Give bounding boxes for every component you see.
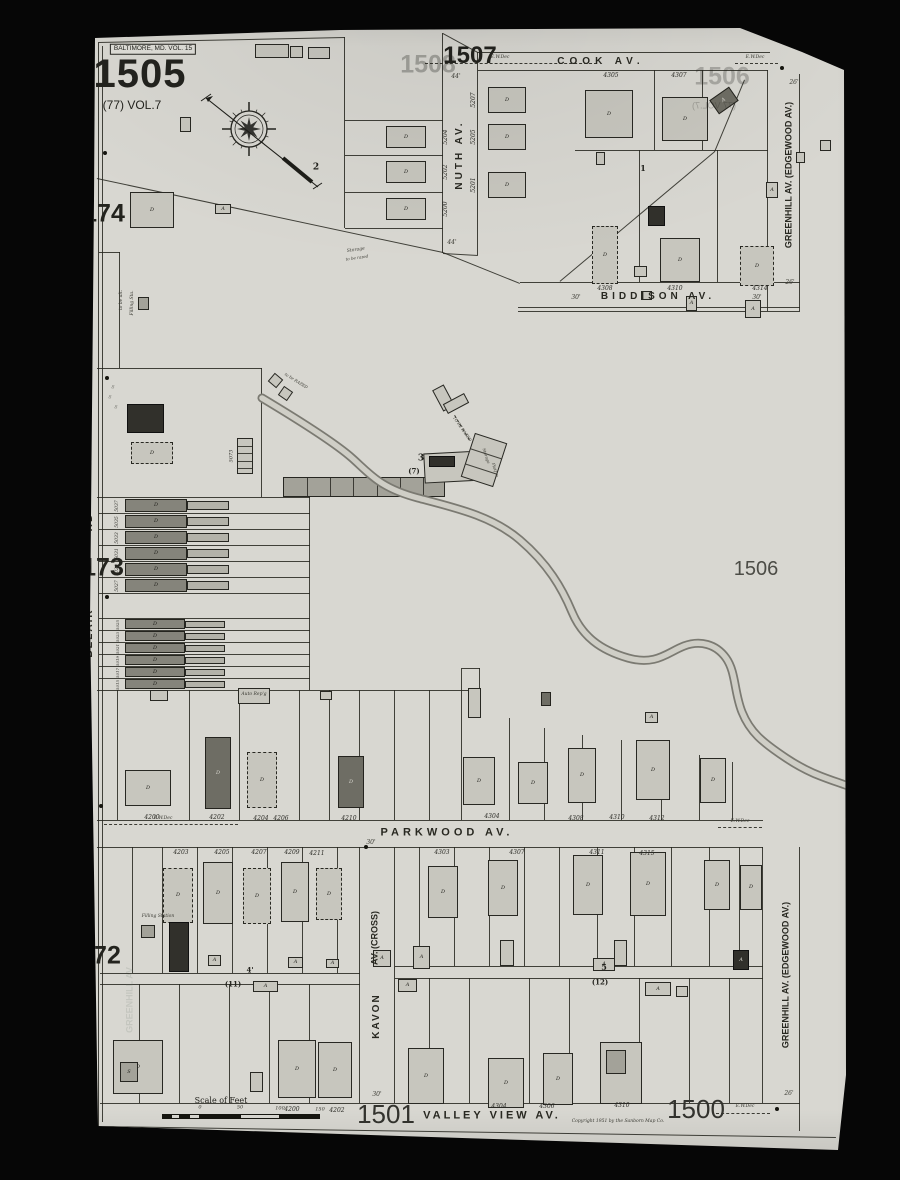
building-use-label: D (404, 170, 408, 175)
building: D (386, 161, 426, 183)
building-use-label: D (153, 670, 157, 675)
building: A (733, 950, 749, 970)
building: D (131, 442, 173, 464)
building: D (740, 865, 762, 910)
plate-number: BALTIMORE, MD. VOL. 15 (110, 44, 196, 55)
building-use-label: A (213, 958, 217, 963)
lot-line (229, 984, 230, 1103)
lot-line (239, 690, 240, 820)
lot-line (559, 847, 560, 966)
lot-line (394, 847, 395, 1103)
street-name: R'D (85, 515, 95, 532)
building-use-label: A (221, 207, 225, 212)
street-name: VALLEY VIEW AV. (423, 1111, 561, 1122)
lot-line (462, 668, 480, 669)
building: D (543, 1053, 573, 1105)
annotation: 8 (114, 406, 117, 411)
annotation: E.W.Dec (731, 820, 750, 825)
building: D (203, 862, 233, 924)
building (320, 691, 332, 700)
plate-number: 1501 (357, 1101, 415, 1127)
building-use-label: D (505, 183, 509, 188)
dimension-label: 30' (372, 1092, 381, 1098)
house-number: 4210 (341, 816, 356, 822)
lot-line (395, 966, 763, 967)
street-name: NUTH AV. (455, 120, 465, 189)
house-number: 4202 (329, 1108, 344, 1114)
house-number: 4308 (568, 816, 583, 822)
building (676, 986, 688, 997)
building-use-label: D (505, 135, 509, 140)
building-use-label: D (580, 773, 584, 778)
annotation: 0 (198, 1106, 201, 1111)
stream (262, 398, 848, 786)
street-name: BIDDISON AV. (601, 292, 715, 302)
lot-line (329, 690, 330, 820)
house-number: 5035 (116, 516, 121, 527)
annotation: E.W.Dec (491, 56, 510, 61)
lot-line (117, 690, 118, 820)
house-number: 4312 (649, 816, 664, 822)
street-name: KAVON (372, 993, 382, 1038)
street-name: GREENHILL AV (126, 967, 135, 1033)
building: D (125, 619, 185, 629)
plate-number: 1506 (734, 559, 779, 579)
lot-line (99, 577, 310, 578)
scale-bar-segment (240, 1114, 280, 1119)
building-use-label: D (153, 622, 157, 627)
lot-line (762, 847, 763, 1103)
building-use-label: D (333, 1068, 337, 1073)
lot-line (97, 368, 262, 369)
building (308, 47, 330, 59)
utility-line (718, 827, 762, 828)
house-number: 4306 (539, 1104, 554, 1110)
building-use-label: A (770, 188, 774, 193)
block-label: Scale of Feet (195, 1097, 248, 1105)
street-name: PARKWOOD AV. (381, 828, 514, 839)
lot-line (345, 192, 443, 193)
lot-line (799, 74, 800, 311)
building-use-label: D (255, 894, 259, 899)
building (185, 621, 225, 628)
building (429, 456, 455, 467)
building (614, 940, 627, 966)
house-number: 4200 (284, 1107, 299, 1113)
building: D (573, 855, 603, 915)
house-number: 5204 (443, 129, 449, 144)
house-number: 5201 (471, 177, 477, 192)
building-use-label: D (607, 112, 611, 117)
building (187, 565, 229, 574)
stream-outline (262, 398, 848, 786)
building (268, 373, 283, 388)
annotation: Auto Rep'g (241, 693, 266, 698)
building-use-label: D (176, 893, 180, 898)
building: D (740, 246, 774, 286)
house-number: 5021 (116, 644, 120, 654)
building: D (125, 515, 187, 528)
house-number: 5031 (116, 548, 121, 559)
lot-line (443, 252, 520, 284)
house-number: 4307 (509, 850, 524, 856)
scale-bar-segment (171, 1114, 180, 1119)
lot-line (359, 847, 360, 1103)
lot-line (99, 545, 310, 546)
house-number: 4315 (639, 851, 654, 857)
building (138, 297, 149, 310)
scale-bar-segment (280, 1114, 320, 1119)
building-use-label: D (216, 891, 220, 896)
lot-line (394, 690, 395, 820)
building-unit-divider (238, 468, 252, 469)
plate-number: 174 (83, 202, 125, 227)
building (541, 692, 551, 706)
building (185, 669, 225, 676)
building: D (592, 226, 618, 284)
house-number: 5023 (116, 632, 120, 642)
annotation: 8 (108, 396, 111, 401)
dimension-label: 44' (451, 74, 460, 80)
annotation: Filling Station (142, 915, 175, 920)
house-number: 5073 (230, 450, 235, 463)
block-label: (12) (592, 979, 608, 986)
building (468, 688, 481, 718)
survey-dot (775, 1107, 779, 1111)
dimension-label: 44' (447, 240, 456, 246)
lot-line (469, 978, 470, 1103)
house-number: 4202 (209, 815, 224, 821)
survey-dot (780, 66, 784, 70)
building: D (125, 531, 187, 544)
lot-line (99, 593, 310, 594)
building (150, 690, 168, 701)
building-use-label: D (154, 583, 158, 588)
building: D (125, 643, 185, 653)
building: A (745, 300, 761, 318)
block-label: 3 (418, 455, 424, 464)
building-use-label: D (154, 519, 158, 524)
building-use-label: D (477, 779, 481, 784)
house-number: 5029 (116, 564, 121, 575)
annotation: TO BE RAZED (452, 416, 472, 442)
plate-number: 1506 (694, 65, 750, 90)
building-use-label: D (683, 117, 687, 122)
building-use-label: D (556, 1077, 560, 1082)
lot-line (461, 668, 462, 820)
compass-rose-icon (222, 102, 276, 156)
building (634, 266, 647, 277)
building (596, 152, 605, 165)
house-number: 5027 (116, 580, 121, 591)
building-use-label: D (154, 535, 158, 540)
annotation: 8 (111, 386, 114, 391)
house-number: 4207 (251, 850, 266, 856)
block-label: (11) (225, 981, 241, 988)
building: D (278, 1040, 316, 1098)
street-name: GREENHILL AV. (EDGEWOOD AV.) (785, 102, 794, 248)
building-use-label: D (293, 890, 297, 895)
building-use-label: D (295, 1067, 299, 1072)
building-use-label: D (146, 786, 150, 791)
lot-line (477, 52, 478, 255)
house-number: 5017 (116, 668, 120, 678)
lot-line (179, 984, 180, 1103)
house-number: 5033 (116, 532, 121, 543)
building: A (215, 204, 231, 214)
building (648, 206, 665, 226)
lot-line (189, 690, 190, 820)
building: D (125, 579, 187, 592)
lot-line (99, 37, 345, 43)
building: D (428, 866, 458, 918)
building: D (488, 124, 526, 150)
building-use-label: A (406, 983, 410, 988)
house-number: 5025 (116, 620, 120, 630)
building: D (408, 1048, 444, 1104)
house-number: 5205 (471, 129, 477, 144)
building-use-label: D (424, 1074, 428, 1079)
lot-line (99, 561, 310, 562)
block-label: (7) (408, 468, 420, 475)
building (250, 1072, 263, 1092)
house-number: 4203 (173, 850, 188, 856)
north-arrow-line (201, 94, 322, 189)
building-use-label: D (505, 98, 509, 103)
block-label: 5 (601, 963, 607, 971)
building: D (463, 757, 495, 805)
building (180, 117, 191, 132)
building-use-label: D (154, 551, 158, 556)
building-use-label: D (749, 885, 753, 890)
building-unit-divider (238, 453, 252, 454)
building-use-label: D (711, 778, 715, 783)
block-label: 1 (640, 164, 646, 172)
lot-line (197, 847, 198, 973)
building (290, 46, 303, 58)
building: D (316, 868, 342, 920)
building: D (130, 192, 174, 228)
lot-line (395, 978, 763, 979)
building-unit-divider (330, 478, 331, 496)
survey-dot (99, 804, 103, 808)
lot-line (479, 668, 480, 690)
lot-line (689, 978, 690, 1103)
survey-dot (105, 376, 109, 380)
building-use-label: D (216, 771, 220, 776)
lot-line (671, 847, 672, 966)
building: D (488, 1058, 524, 1108)
plate-number: 1505 (94, 54, 187, 94)
building-use-label: D (504, 1081, 508, 1086)
lot-line (529, 978, 530, 1103)
building: D (704, 860, 730, 910)
plate-number: 172 (79, 944, 121, 969)
annotation: Filling Sta. (131, 290, 136, 315)
lot-line (345, 155, 443, 156)
building: D (125, 563, 187, 576)
building-unit-divider (238, 461, 252, 462)
building: A (326, 959, 339, 968)
scale-bar-segment (180, 1114, 189, 1119)
lot-line (99, 529, 310, 530)
annotation: E.W.Dec (736, 1105, 755, 1110)
house-number: 4204 (253, 816, 268, 822)
building (185, 657, 225, 664)
dimension-label: 30' (752, 295, 761, 301)
lot-line (478, 52, 770, 53)
building: D (125, 667, 185, 677)
lot-line (524, 847, 525, 966)
lot-line (732, 762, 733, 820)
house-number: 4310 (609, 815, 624, 821)
building: A (413, 946, 430, 969)
building (185, 645, 225, 652)
building (185, 633, 225, 640)
building-unit-divider (307, 478, 308, 496)
building: D (488, 87, 526, 113)
block-label: 2 (313, 164, 319, 173)
plate-number: 1508 (400, 53, 456, 78)
building (187, 533, 229, 542)
annotation: 100 (275, 1107, 285, 1112)
building-use-label: A (739, 958, 743, 963)
building: D (205, 737, 231, 809)
house-number: 5019 (116, 656, 120, 666)
house-number: 4209 (284, 850, 299, 856)
building-use-label: A (420, 955, 424, 960)
building: D (125, 499, 187, 512)
street-name: GREENHILL AV. (EDGEWOOD AV.) (782, 902, 791, 1048)
building-use-label: D (651, 768, 655, 773)
lot-line (99, 252, 120, 253)
building-use-label: D (150, 451, 154, 456)
street-name: COOK AV. (557, 57, 644, 67)
building: D (568, 748, 596, 803)
dimension-label: 26' (789, 80, 798, 86)
building-use-label: D (531, 781, 535, 786)
lot-line (729, 978, 730, 1103)
building (796, 152, 805, 163)
lot-line (100, 973, 360, 974)
building-unit-divider (377, 478, 378, 496)
building: D (585, 90, 633, 138)
building-use-label: D (678, 258, 682, 263)
house-number: 4303 (434, 850, 449, 856)
dimension-label: 30' (571, 295, 580, 301)
building-use-label: D (755, 264, 759, 269)
house-number: 5200 (443, 201, 449, 216)
lot-line (269, 984, 270, 1103)
lot-line (344, 37, 345, 228)
building: D (660, 238, 700, 282)
scale-bar-segment (189, 1114, 200, 1119)
building: D (636, 740, 670, 800)
lot-line (621, 740, 622, 820)
building-use-label: S (127, 1070, 130, 1075)
annotation: 150 (315, 1108, 325, 1113)
building-use-label: D (327, 892, 331, 897)
lot-line (97, 497, 310, 498)
annotation: 50 (237, 1106, 243, 1111)
building (187, 517, 229, 526)
house-number: 4206 (273, 816, 288, 822)
building: S (120, 1062, 138, 1082)
building-use-label: D (154, 503, 158, 508)
scale-bar-segment (200, 1114, 240, 1119)
building: A (208, 955, 221, 966)
house-number: 4205 (214, 850, 229, 856)
scale-bar-segment (162, 1114, 171, 1119)
survey-dot (103, 151, 107, 155)
lot-line (654, 70, 655, 150)
plate-number: (77) VOL.7 (103, 99, 162, 111)
building: A (645, 712, 658, 723)
building: D (700, 758, 726, 803)
lot-line (299, 690, 300, 820)
building-use-label: A (294, 960, 298, 965)
plate-number: (77 VOL.7) (692, 102, 736, 111)
building (127, 404, 164, 433)
annotation: to be RAZED (284, 372, 308, 389)
house-number: 4314 (752, 286, 767, 292)
building: D (386, 198, 426, 220)
building: D (318, 1042, 352, 1098)
building: D (488, 860, 518, 916)
building: D (488, 172, 526, 198)
building: D (125, 770, 171, 806)
building: D (125, 655, 185, 665)
building: D (125, 679, 185, 689)
lot-line (132, 847, 133, 973)
map-paper: DADDDDDDDDAADDDAADDDDDDDDDDADDDDDAAAAADS… (0, 0, 900, 1180)
building-use-label: D (586, 883, 590, 888)
building-use-label: D (150, 208, 154, 213)
house-number: 5207 (471, 92, 477, 107)
building: A (645, 982, 671, 996)
building-use-label: A (380, 956, 384, 961)
building: A (398, 979, 417, 992)
building-use-label: A (264, 984, 268, 989)
building-use-label: D (404, 135, 408, 140)
building: D (281, 862, 309, 922)
building (169, 922, 189, 972)
house-number: 4307 (671, 73, 686, 79)
building: D (243, 868, 271, 924)
annotation: Copyright 1951 by the Sanborn Map Co. (572, 1120, 665, 1125)
lot-line (717, 150, 718, 282)
dimension-label: 26' (785, 280, 794, 286)
house-number: 4211 (309, 851, 324, 857)
survey-dot (364, 845, 368, 849)
building (185, 681, 225, 688)
lot-line (99, 1126, 836, 1138)
building-use-label: A (751, 307, 755, 312)
plate-number: 1500 (667, 1096, 725, 1122)
house-number: 4310 (614, 1103, 629, 1109)
utility-line (104, 824, 238, 825)
building-use-label: A (656, 987, 660, 992)
annotation: to be razed (345, 254, 368, 261)
building (187, 581, 229, 590)
building: D (247, 752, 277, 808)
lot-line (261, 368, 262, 497)
annotation: to be alt. (120, 290, 125, 310)
building: D (338, 756, 364, 808)
building (283, 477, 445, 497)
building-use-label: D (441, 890, 445, 895)
building: A (288, 957, 303, 968)
